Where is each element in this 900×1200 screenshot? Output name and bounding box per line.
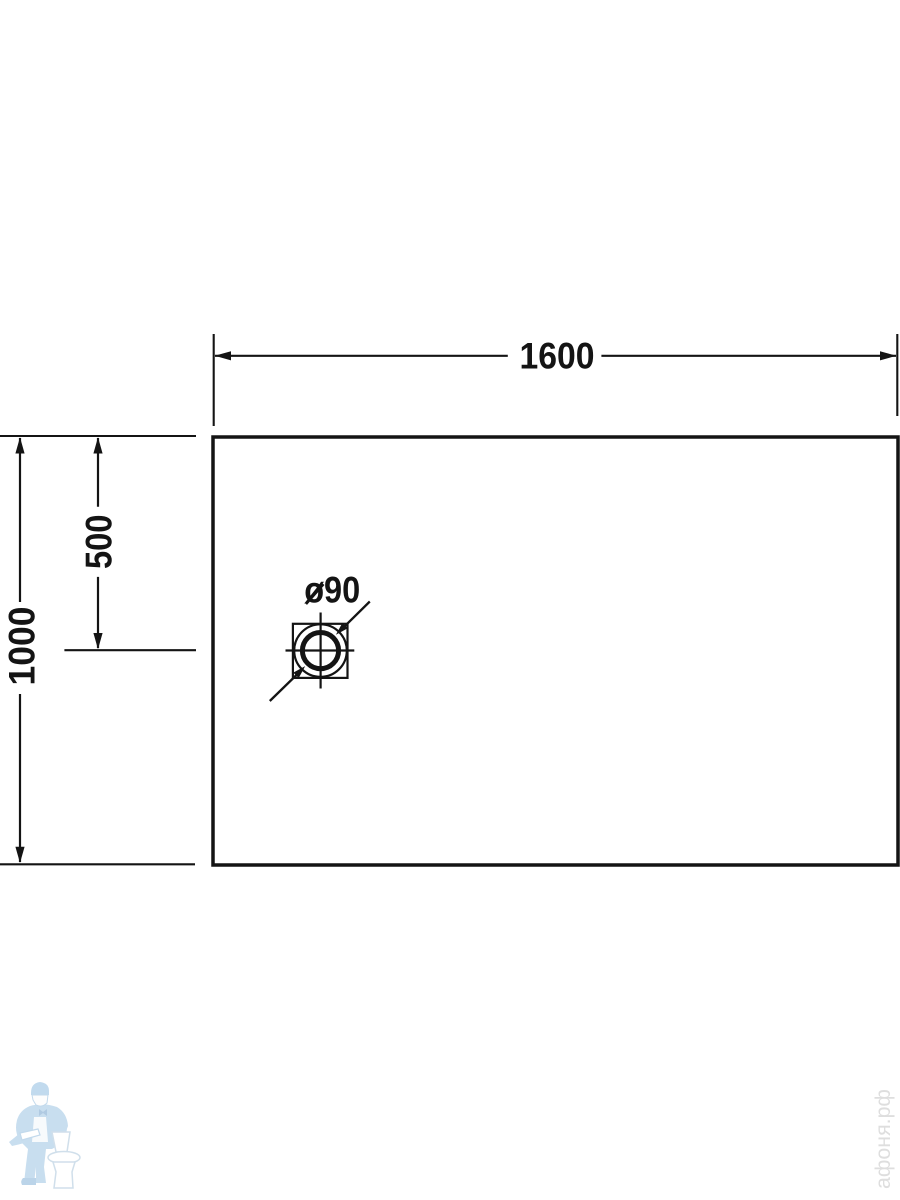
svg-text:500: 500 [78, 515, 119, 570]
svg-text:ø90: ø90 [304, 570, 360, 611]
svg-text:1600: 1600 [520, 336, 595, 377]
svg-text:афоня.рф: афоня.рф [872, 1089, 895, 1189]
svg-text:1000: 1000 [1, 607, 42, 686]
